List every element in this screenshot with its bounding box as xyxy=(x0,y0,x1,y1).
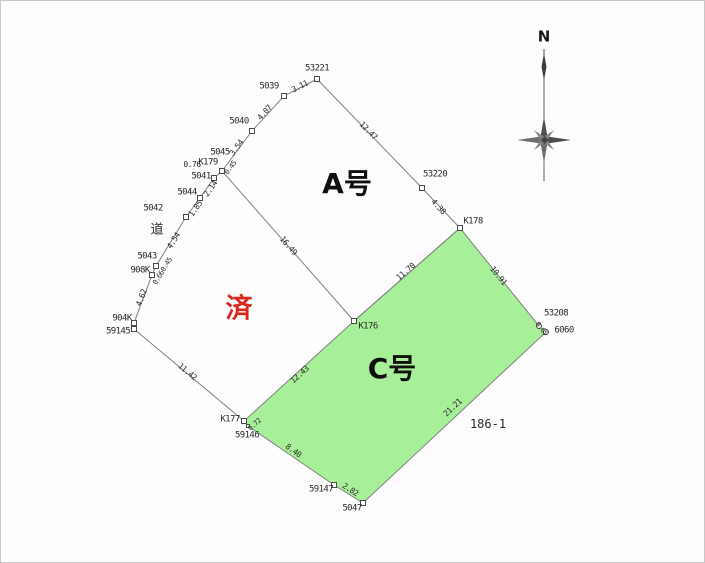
point-label-59145: 59145 xyxy=(106,328,130,337)
point-label-5042: 5042 xyxy=(143,205,162,214)
point-label-5039: 5039 xyxy=(259,83,278,92)
point-marker-5042 xyxy=(183,214,189,220)
point-label-5045: 5045 xyxy=(210,149,229,158)
point-label-53221: 53221 xyxy=(305,65,329,74)
point-label-53220: 53220 xyxy=(423,171,447,180)
compass-north-label: N xyxy=(538,30,551,45)
point-label-5041: 5041 xyxy=(191,173,210,182)
compass-rose xyxy=(517,49,571,181)
point-marker-K178 xyxy=(457,225,463,231)
point-label-59147: 59147 xyxy=(309,486,333,495)
point-label-5047: 5047 xyxy=(342,505,361,514)
point-label-53208: 53208 xyxy=(544,310,568,319)
point-label-904K: 904K xyxy=(112,315,131,324)
compass-arrowhead xyxy=(542,53,547,80)
point-marker-59145 xyxy=(131,326,137,332)
point-marker-5039 xyxy=(281,93,287,99)
parcel-c-label: C号 xyxy=(368,355,417,383)
point-marker-K176 xyxy=(351,318,357,324)
point-label-K178: K178 xyxy=(463,218,482,227)
parcel-line-drawing xyxy=(1,1,705,563)
point-label-5044: 5044 xyxy=(177,189,196,198)
road-label: 道 xyxy=(150,224,163,237)
point-label-5043: 5043 xyxy=(137,253,156,262)
point-label-K176: K176 xyxy=(358,323,377,332)
point-marker-53220 xyxy=(419,185,425,191)
survey-plot-map: 53221503950405045K1795041504450425043908… xyxy=(0,0,705,563)
edge-measurement-5: 0.76 xyxy=(183,161,200,169)
point-label-K177: K177 xyxy=(220,416,239,425)
point-label-6060: 6060 xyxy=(554,327,573,336)
sold-stamp: 済 xyxy=(226,296,253,323)
point-marker-5040 xyxy=(249,128,255,134)
adjacent-lot-number: 186-1 xyxy=(470,418,506,430)
point-marker-5043 xyxy=(153,263,159,269)
point-label-59146: 59146 xyxy=(235,432,259,441)
point-marker-53221 xyxy=(314,76,320,82)
point-label-K179: K179 xyxy=(198,159,217,168)
parcel-a-label: A号 xyxy=(322,170,372,198)
point-label-5040: 5040 xyxy=(229,118,248,127)
point-label-908K: 908K xyxy=(130,267,149,276)
